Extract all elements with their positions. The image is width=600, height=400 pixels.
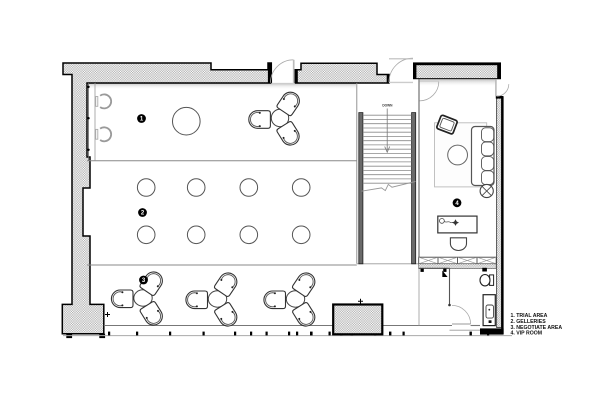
svg-text:DOWN: DOWN [382, 103, 393, 107]
svg-text:4. VIP ROOM: 4. VIP ROOM [511, 331, 543, 337]
